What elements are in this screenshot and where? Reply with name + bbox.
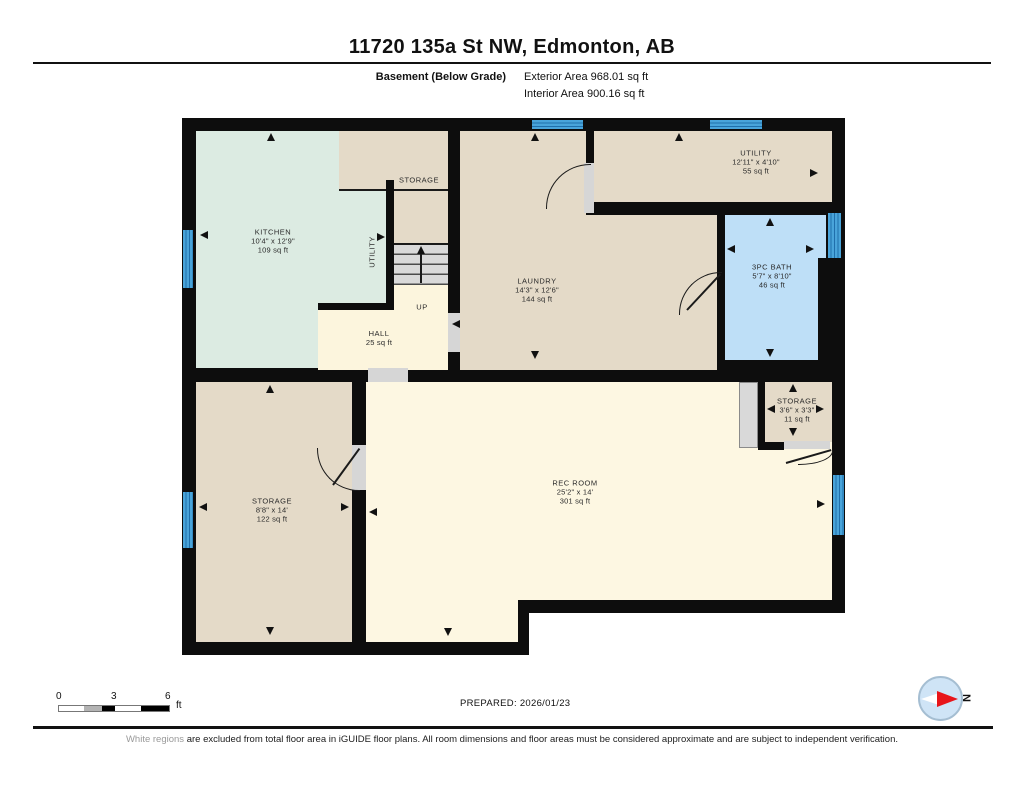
dim-arrow [816,405,824,413]
dim-arrow [766,349,774,357]
label-storage-small: STORAGE 3'6" x 3'3" 11 sq ft [777,397,817,424]
label-utility-closet: UTILITY [368,236,377,267]
floor-label: Basement (Below Grade) [230,71,506,83]
label-up: UP [416,303,427,312]
prepared-date: PREPARED: 2026/01/23 [460,698,570,709]
door-slab-storage-small [784,441,830,449]
dim-arrow [789,428,797,436]
room-utility-closet [394,191,448,245]
window-right-bath [827,213,842,258]
dim-arrow [444,628,452,636]
room-rec-lower [366,600,518,642]
dim-arrow [341,503,349,511]
scale-tick-3: 3 [111,691,117,702]
dim-arrow [369,508,377,516]
dim-arrow [727,245,735,253]
footer-divider [33,726,993,729]
label-storage-top: STORAGE [399,176,439,185]
dim-arrow [267,133,275,141]
window-left-kitchen [182,230,194,288]
dim-arrow [266,385,274,393]
stairs-arrow-line [420,253,422,283]
wall-storage-small-left [758,382,765,450]
dim-arrow [377,233,385,241]
compass-north-label: N [960,694,972,702]
disclaimer: White regions are excluded from total fl… [0,734,1024,745]
scale-unit: ft [176,700,182,711]
dim-arrow [199,503,207,511]
dim-arrow [810,169,818,177]
scale-tick-0: 0 [56,691,62,702]
label-laundry: LAUNDRY 14'3" x 12'6" 144 sq ft [515,277,559,304]
interior-area: Interior Area 900.16 sq ft [524,88,644,100]
header-divider [33,62,991,64]
dim-arrow [200,231,208,239]
dim-arrow [767,405,775,413]
doorway-hall-rec [368,368,408,382]
dim-arrow [789,384,797,392]
window-left-storage [182,492,194,548]
disclaimer-gray-text: White regions [126,734,184,745]
scale-tick-6: 6 [165,691,171,702]
dim-arrow [766,218,774,226]
wall-storage-small-bottom [758,442,784,450]
label-kitchen: KITCHEN 10'4" x 12'9" 109 sq ft [251,228,295,255]
dim-arrow [806,245,814,253]
window-right-rec [832,475,845,535]
scale-bar [58,705,170,712]
window-top-utility [710,119,762,130]
doorway-hall-laundry [448,313,460,352]
label-storage-main: STORAGE 8'8" x 14' 122 sq ft [252,497,292,524]
wall-kitchen-hall [318,303,394,310]
dim-arrow [531,351,539,359]
label-utility: UTILITY 12'11" x 4'10" 55 sq ft [732,149,780,176]
stairs-arrow-head [417,246,425,254]
wall-notch [386,180,394,191]
room-utility [594,131,832,202]
floorplan-page: { "header": { "title": "11720 135a St NW… [0,0,1024,791]
dim-arrow [817,500,825,508]
wall-kitchen-stairs [386,191,394,310]
dim-arrow [452,320,460,328]
page-title: 11720 135a St NW, Edmonton, AB [0,36,1024,59]
hvac-unit [739,382,758,448]
exterior-area: Exterior Area 968.01 sq ft [524,71,648,83]
room-laundry [460,131,586,370]
dim-arrow [675,133,683,141]
dim-arrow [531,133,539,141]
disclaimer-text: are excluded from total floor area in iG… [184,734,898,745]
label-bath: 3PC BATH 5'7" x 8'10" 46 sq ft [752,263,792,290]
label-rec-room: REC ROOM 25'2" x 14' 301 sq ft [552,479,597,506]
label-hall: HALL 25 sq ft [366,329,392,347]
window-top-laundry [532,119,583,130]
dim-arrow [266,627,274,635]
